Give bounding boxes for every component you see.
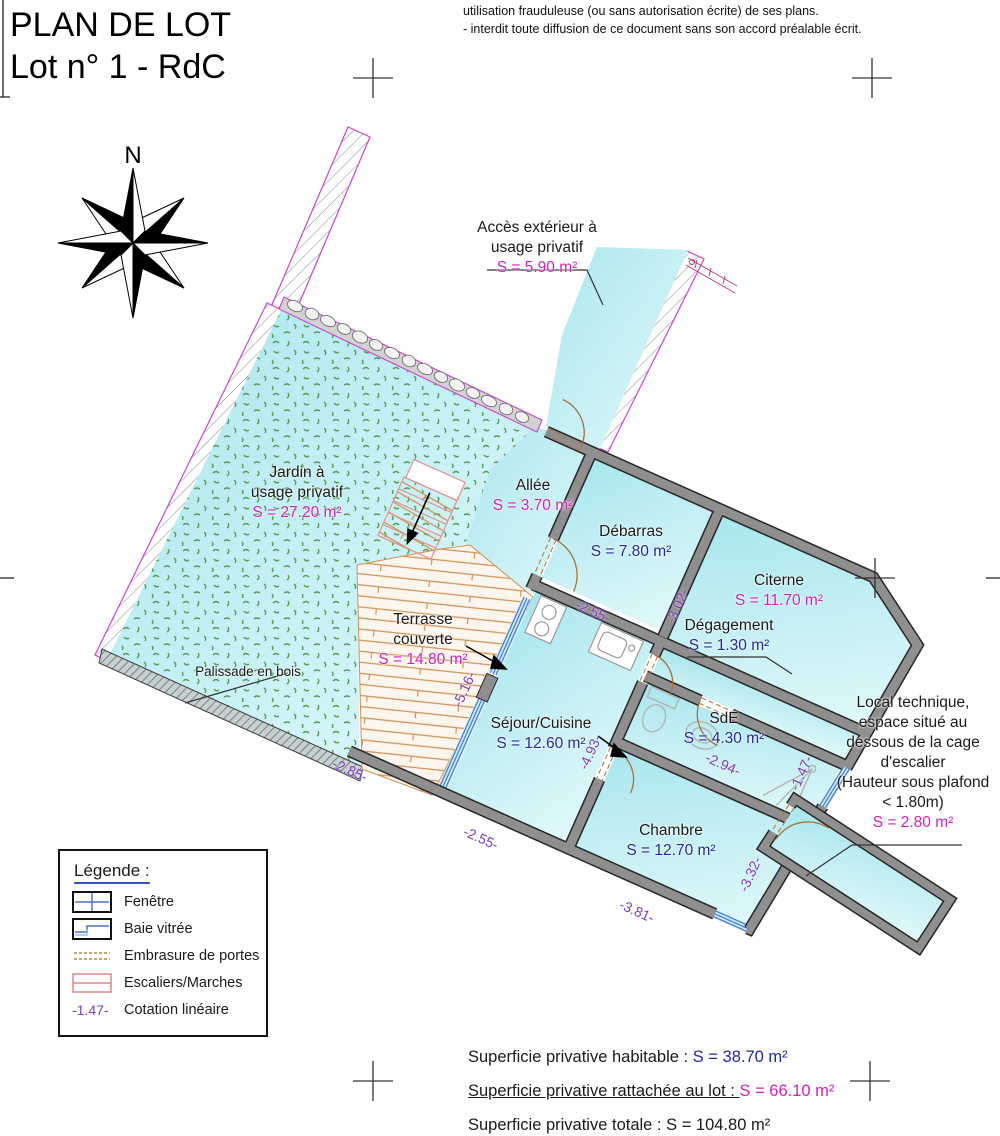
summary-value: S = 66.10 m² [739,1082,834,1100]
page-title-line1: PLAN DE LOT [10,4,231,46]
label-line: Allée [493,476,574,496]
label-allee: AlléeS = 3.70 m² [493,476,574,516]
label-line: S = 11.70 m² [735,591,823,611]
label-debarras: DébarrasS = 7.80 m² [591,522,672,562]
label-sejour-cuisine: Séjour/CuisineS = 12.60 m² [491,714,592,754]
legend-item-fenetre: Fenêtre [72,888,266,915]
legend-item-baie-vitree: Baie vitrée [72,915,266,942]
cotation-sample: -1.47- [72,1002,116,1018]
label-line: Dégagement [685,616,774,636]
summary-row-1: Superficie privative rattachée au lot : … [468,1074,834,1108]
label-line: usage privatif [251,483,343,503]
stairs-icon [72,972,116,994]
label-line: espace situé au [837,713,990,733]
label-acces-exterieur: Accès extérieur àusage privatifS = 5.90 … [477,218,597,278]
label-line: S = 7.80 m² [591,542,672,562]
disclaimer-line1: utilisation frauduleuse (ou sans autoris… [463,2,862,20]
label-jardin: Jardin àusage privatifS = 27.20 m² [251,463,343,523]
compass-north-label: N [124,142,141,169]
label-line: < 1.80m) [837,793,990,813]
label-line: d'escalier [837,753,990,773]
summary-label: Superficie privative totale : [468,1116,666,1134]
summary-row-2: Superficie privative totale : S = 104.80… [468,1108,834,1136]
summary-value: S = 38.70 m² [693,1048,788,1066]
legend-item-embrasure: Embrasure de portes [72,942,266,969]
door-opening-icon [72,945,116,967]
label-line: S = 2.80 m² [837,813,990,833]
label-line: Séjour/Cuisine [491,714,592,734]
legend-label-cotation: Cotation linéaire [124,1002,229,1018]
label-line: dessous de la cage [837,733,990,753]
label-line: Terrasse [378,610,467,630]
label-citerne: CiterneS = 11.70 m² [735,571,823,611]
label-line: couverte [378,630,467,650]
bay-window-icon [72,918,116,940]
legend-title: Légende : [74,861,150,884]
summary-row-0: Superficie privative habitable : S = 38.… [468,1040,834,1074]
label-line: (Hauteur sous plafond [837,773,990,793]
legend-label-fenetre: Fenêtre [124,894,174,910]
label-line: Chambre [626,821,715,841]
label-line: S = 1.30 m² [685,636,774,656]
legend-label-escaliers: Escaliers/Marches [124,975,242,991]
label-line: Débarras [591,522,672,542]
label-line: Palissade en bois [195,662,301,682]
label-line: S = 4.30 m² [684,729,765,749]
label-line: S = 5.90 m² [477,258,597,278]
label-line: S = 14.80 m² [378,650,467,670]
label-sde: SdES = 4.30 m² [684,709,765,749]
label-degagement: DégagementS = 1.30 m² [685,616,774,656]
page-title-line2: Lot n° 1 - RdC [10,46,231,88]
label-line: S = 12.70 m² [626,841,715,861]
legend: Légende : Fenêtre Baie vitrée Embrasure … [58,849,268,1037]
page-title: PLAN DE LOT Lot n° 1 - RdC [10,4,231,88]
label-terrasse: TerrassecouverteS = 14.80 m² [378,610,467,670]
summary-value: S = 104.80 m² [666,1116,770,1134]
label-line: Citerne [735,571,823,591]
window-icon [72,891,116,913]
label-line: SdE [684,709,765,729]
legend-item-escaliers: Escaliers/Marches [72,969,266,996]
compass-rose [58,168,208,318]
summary-label: Superficie privative habitable : [468,1048,693,1066]
label-local-technique: Local technique,espace situé audessous d… [837,693,990,833]
label-chambre: ChambreS = 12.70 m² [626,821,715,861]
label-line: S = 27.20 m² [251,503,343,523]
label-line: S = 3.70 m² [493,496,574,516]
label-line: Local technique, [837,693,990,713]
surface-summary: Superficie privative habitable : S = 38.… [468,1040,834,1136]
disclaimer: utilisation frauduleuse (ou sans autoris… [463,2,862,38]
disclaimer-line2: - interdit toute diffusion de ce documen… [463,20,862,38]
label-line: Accès extérieur à [477,218,597,238]
label-line: usage privatif [477,238,597,258]
label-line: S = 12.60 m² [491,734,592,754]
legend-item-cotation: -1.47- Cotation linéaire [72,996,266,1023]
summary-label: Superficie privative rattachée au lot : [468,1082,739,1100]
label-line: Jardin à [251,463,343,483]
legend-label-embrasure: Embrasure de portes [124,948,259,964]
plan-de-lot-page: N PLAN DE LOT Lot n° 1 - RdC utilisation… [0,0,1000,1136]
label-palissade: Palissade en bois [195,662,301,682]
legend-label-baie-vitree: Baie vitrée [124,921,193,937]
